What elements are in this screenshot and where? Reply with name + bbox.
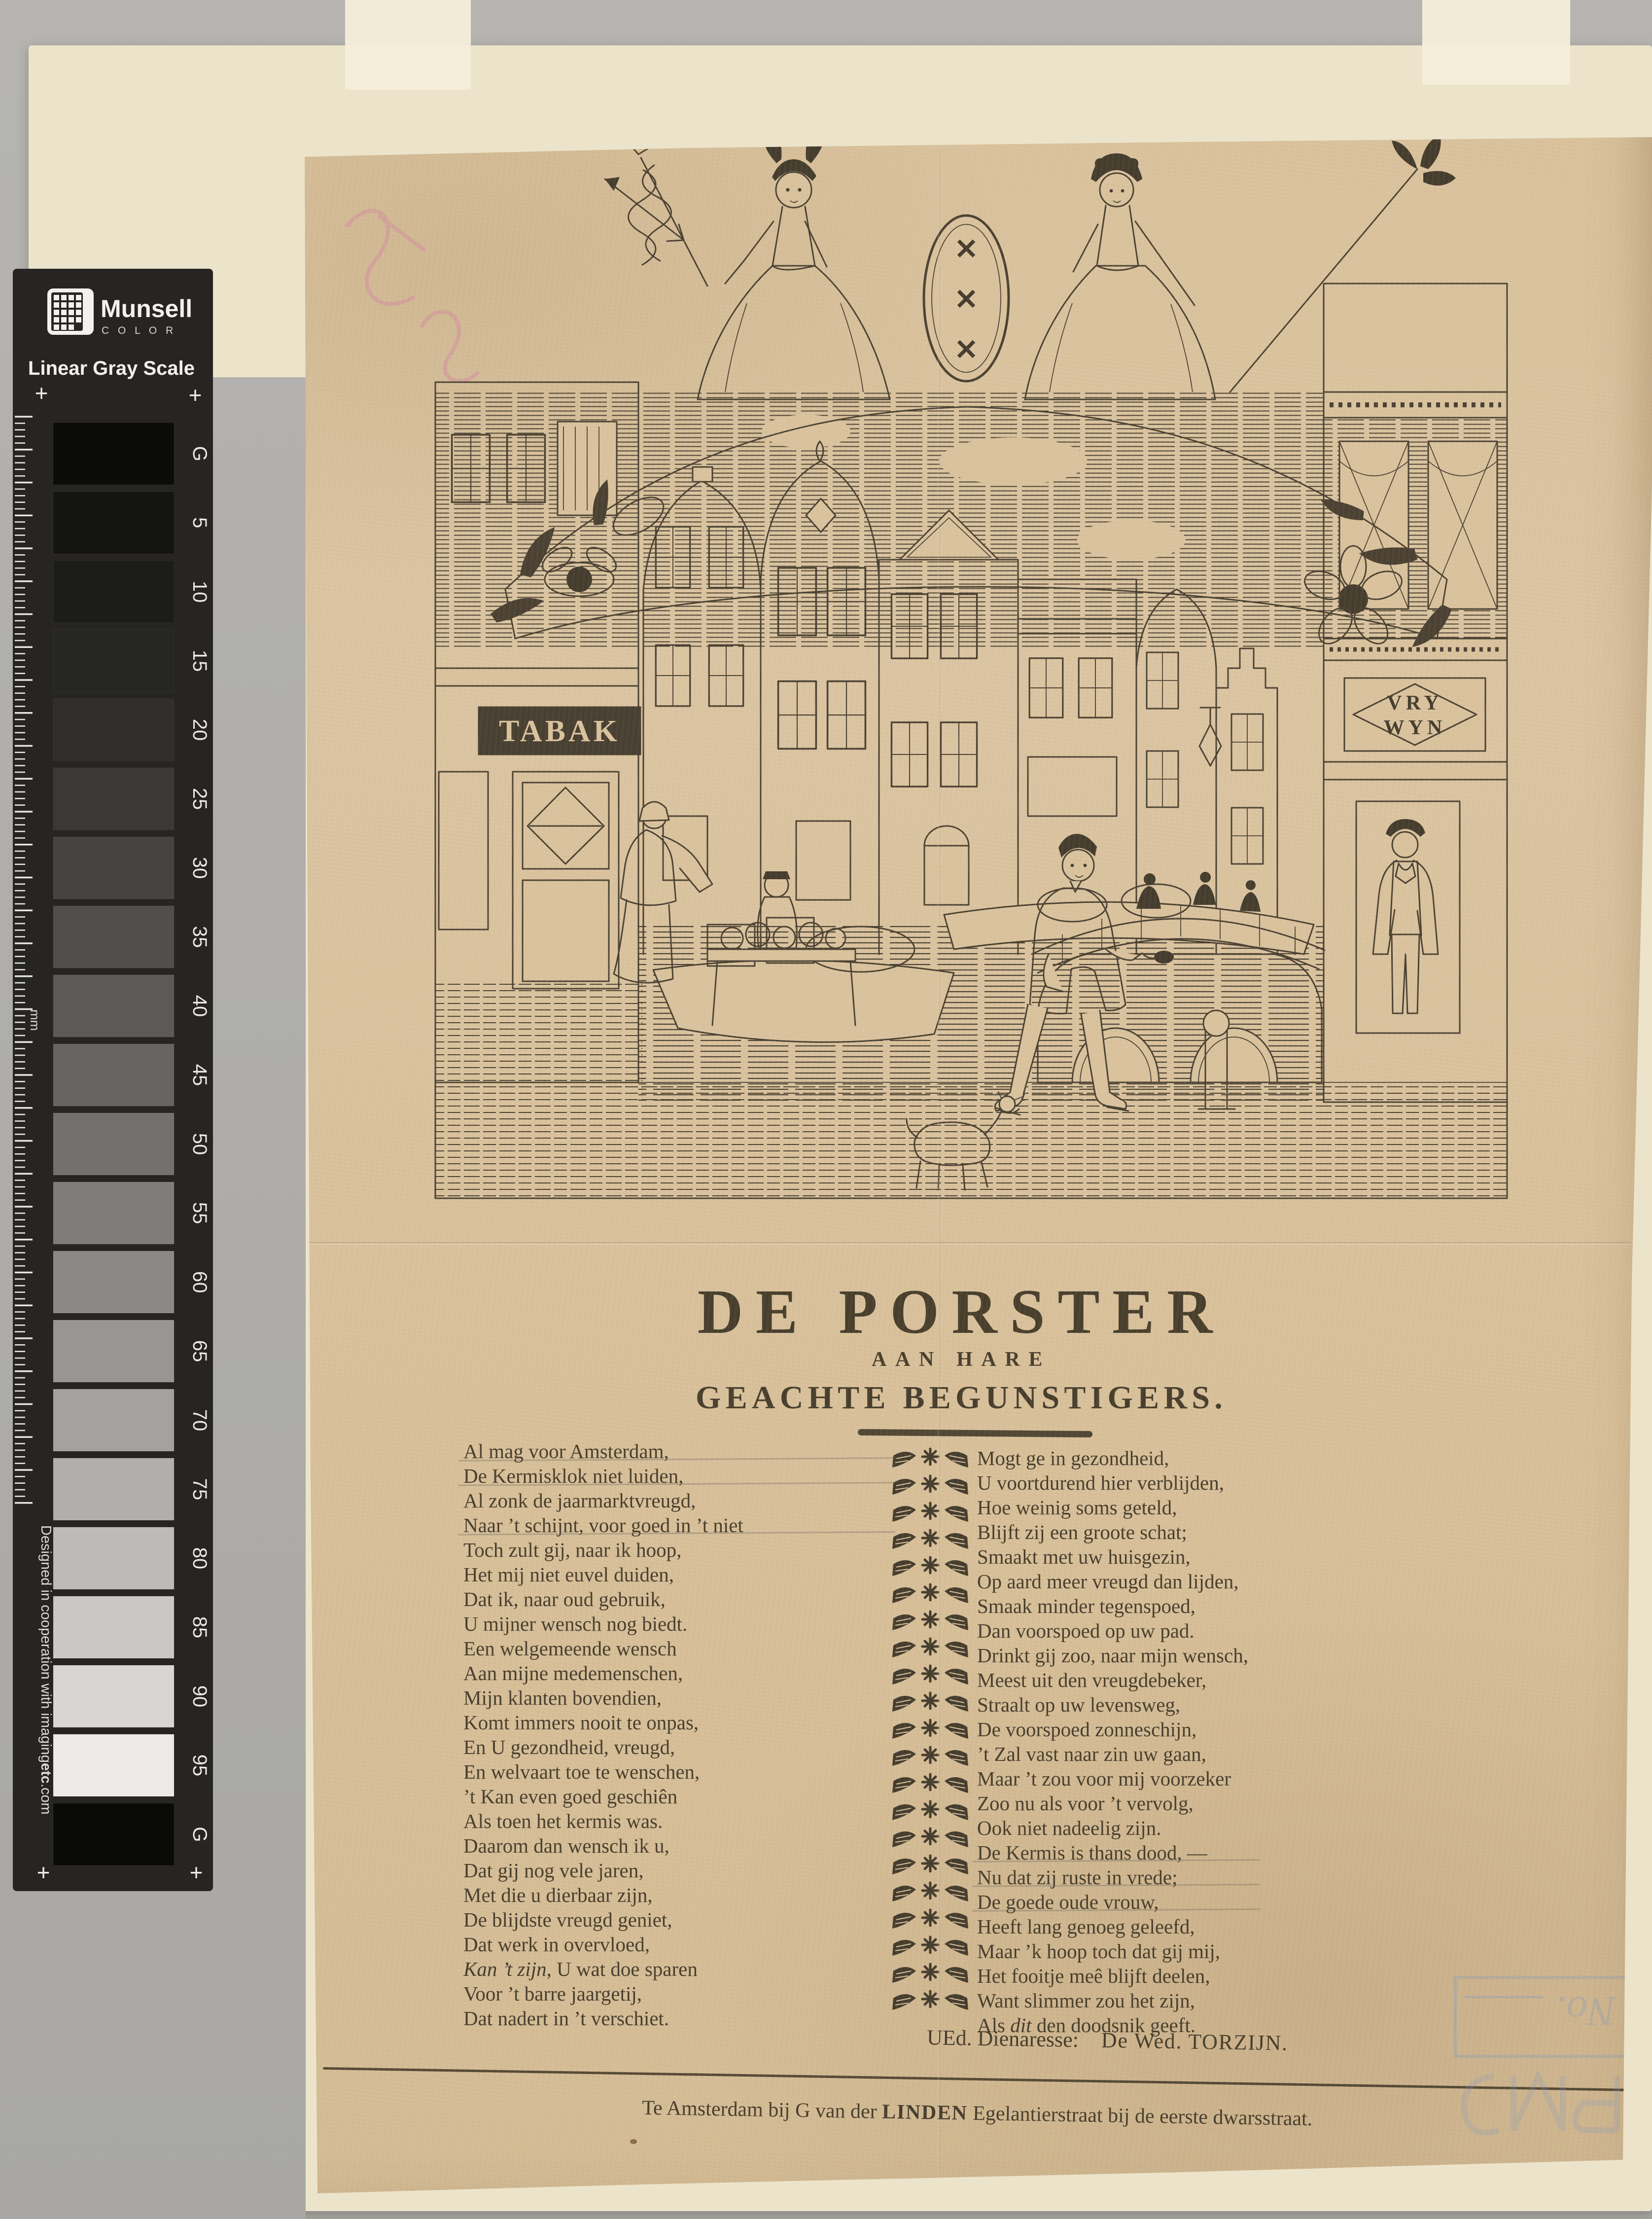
patch-label: 85 <box>189 1616 211 1639</box>
gray-patch <box>53 1734 174 1796</box>
poem-line: Nu dat zij ruste in vrede; <box>977 1865 1248 1890</box>
paper-speck <box>630 2139 637 2144</box>
patch-label: 80 <box>189 1547 211 1570</box>
poem-line: Al zonk de jaarmarktvreugd, <box>463 1488 883 1513</box>
signature-salutation: UEd. Dienaresse: <box>927 2025 1079 2052</box>
ink-stamp-bleedthrough: No. <box>1420 1953 1647 2160</box>
page-title: DE PORSTER <box>404 1280 1518 1343</box>
tabak-sign: TABAK <box>499 715 620 748</box>
allegory-figure-right <box>1025 153 1215 399</box>
patch-label: 95 <box>189 1754 211 1777</box>
svg-text:WYN: WYN <box>1384 716 1446 739</box>
gray-scale-title: Linear Gray Scale <box>28 358 195 379</box>
canal-and-boats <box>638 884 1324 1102</box>
gray-patch <box>53 1182 174 1244</box>
patch-label: 35 <box>189 926 211 948</box>
patch-label: 30 <box>189 857 211 879</box>
ornament-row <box>892 1449 968 1467</box>
svg-text:✕: ✕ <box>954 334 979 366</box>
gray-patch <box>53 423 174 485</box>
gray-patch <box>53 1527 174 1589</box>
poem-line: Drinkt gij zoo, naar mijn wensch, <box>977 1643 1248 1668</box>
ornament-row <box>892 1828 968 1847</box>
patch-label: 70 <box>189 1409 211 1432</box>
patch-label: 60 <box>189 1271 211 1293</box>
poem-line: Smaakt met uw huisgezin, <box>977 1544 1248 1569</box>
gray-patch <box>53 699 174 761</box>
gray-patch <box>53 561 174 623</box>
ornament-row <box>892 1557 968 1576</box>
poem-line: Al mag voor Amsterdam, <box>463 1439 883 1464</box>
poem-line: Een welgemeende wensch <box>463 1636 883 1661</box>
poem-columns: Al mag voor Amsterdam,De Kermisklok niet… <box>463 1439 1632 2038</box>
poem-line: Blijft zij een groote schat; <box>977 1520 1248 1544</box>
street-foreground <box>435 802 1507 1197</box>
patch-label: 5 <box>189 517 211 528</box>
poem-line: Meest uit den vreugdebeker, <box>977 1668 1248 1692</box>
patch-label: 45 <box>189 1064 211 1086</box>
canal-bridge <box>1032 872 1325 1082</box>
wine-house-building: VRY WYN <box>1324 284 1507 1102</box>
poem-line: Want slimmer zou het zijn, <box>977 1988 1248 2013</box>
gray-patches <box>53 423 174 1865</box>
patch-label: G <box>189 446 211 461</box>
signature-line: UEd. Dienaresse:De Wed. TORZIJN. <box>927 2025 1289 2056</box>
poem-line: Dat werk in overvloed, <box>463 1932 883 1957</box>
bridge-pedestrians <box>1136 884 1261 912</box>
poem-line: Het mij niet euvel duiden, <box>463 1562 883 1587</box>
ornament-row <box>892 1801 968 1820</box>
patch-label: 65 <box>189 1340 211 1362</box>
ornament-row <box>892 1476 968 1495</box>
dog <box>907 1091 1024 1190</box>
poem-line: Straalt op uw levensweg, <box>977 1692 1248 1717</box>
poem-line: Dat ik, naar oud gebruik, <box>463 1587 883 1611</box>
vertical-fold-crease <box>938 145 940 2187</box>
poem-line: De Kermisklok niet luiden, <box>463 1464 883 1488</box>
patch-label: 20 <box>189 719 211 741</box>
poem-line: Daarom dan wensch ik u, <box>463 1833 883 1858</box>
corn-cob <box>607 490 670 543</box>
ornament-row <box>892 1883 968 1901</box>
poem-column-left: Al mag voor Amsterdam,De Kermisklok niet… <box>463 1439 883 2038</box>
scanned-document-page: TABAK <box>0 0 1652 2219</box>
ornament-row <box>892 1666 968 1684</box>
poem-line: De blijdste vreugd geniet, <box>463 1907 883 1932</box>
ornament-row <box>892 1693 968 1712</box>
gray-patch <box>53 1251 174 1313</box>
poem-line: U mijner wensch nog biedt. <box>463 1611 883 1636</box>
poem-line: De Kermis is thans dood, — <box>977 1840 1248 1865</box>
registration-plus-bottom-left: + <box>37 1860 50 1885</box>
registration-plus-bottom-right: + <box>190 1860 203 1885</box>
ornament-row <box>892 1937 968 1956</box>
mounting-tape-left <box>345 0 471 90</box>
svg-text:No.: No. <box>1556 1988 1617 2035</box>
gray-patch <box>53 906 174 968</box>
ornament-row <box>892 1530 968 1549</box>
canal-houses <box>643 441 1277 954</box>
caduceus <box>605 140 707 286</box>
ornament-row <box>892 1964 968 1983</box>
pencil-pink-inscription <box>315 162 524 425</box>
woodcut-illustration: TABAK <box>431 116 1511 1208</box>
ornament-row <box>892 1584 968 1603</box>
imprint-publisher: LINDEN <box>882 2101 968 2125</box>
gray-patch <box>53 492 174 554</box>
poem-line: Op aard meer vreugd dan lijden, <box>977 1569 1248 1594</box>
poem-line: ’t Kan even goed geschiên <box>463 1784 883 1809</box>
crest-allegory: ✕ ✕ ✕ <box>489 128 1459 650</box>
poem-line: Maar ’t zou voor mij voorzeker <box>977 1766 1248 1791</box>
poem-line: Als toen het kermis was. <box>463 1809 883 1833</box>
ornament-divider <box>883 1439 977 2038</box>
man-in-doorway <box>1373 819 1438 1013</box>
patch-label: 15 <box>189 650 211 672</box>
patch-label: 10 <box>189 581 211 603</box>
ornament-row <box>892 1747 968 1766</box>
ornament-row <box>892 1720 968 1739</box>
poem-line: U voortdurend hier verblijden, <box>977 1470 1248 1495</box>
amsterdam-shield: ✕ ✕ ✕ <box>924 215 1009 381</box>
mounting-tape-right <box>1422 0 1570 85</box>
imprint-line: Te Amsterdam bij G van der LINDEN Egelan… <box>323 2091 1632 2136</box>
poem-line: Hoe weinig soms geteld, <box>977 1495 1248 1520</box>
flower-garland <box>505 407 1447 639</box>
ornament-row <box>892 1503 968 1522</box>
poem-line: De voorspoed zonneschijn, <box>977 1717 1248 1742</box>
gray-patch <box>53 837 174 899</box>
poem-line: Zoo nu als voor ’t vervolg, <box>977 1791 1248 1816</box>
poem-line: Als dit den doodsnik geeft. <box>977 2013 1248 2038</box>
poem-line: Kan ’t zijn, U wat doe sparen <box>463 1957 883 1981</box>
heading-rule <box>858 1429 1092 1437</box>
poem-line: Maar ’k hoop toch dat gij mij, <box>977 1939 1248 1964</box>
poem-line: Dat gij nog vele jaren, <box>463 1858 883 1883</box>
munsell-brand-sub: C O L O R <box>102 325 176 336</box>
gray-patch <box>53 975 174 1037</box>
poem-line: Aan mijne medemenschen, <box>463 1661 883 1685</box>
ornament-row <box>892 1611 968 1630</box>
signature-name: De Wed. TORZIJN. <box>1101 2028 1289 2055</box>
poem-line: En U gezondheid, vreugd, <box>463 1735 883 1759</box>
flower-right <box>1301 546 1406 650</box>
page-subtitle-2: GEACHTE BEGUNSTIGERS. <box>404 1382 1518 1414</box>
poem-line: Voor ’t barre jaargetij, <box>463 1981 883 2006</box>
poem-line: Ook niet nadeelig zijn. <box>977 1816 1248 1840</box>
ruler-unit-label: mm <box>28 1009 42 1031</box>
ornament-row <box>892 1910 968 1929</box>
munsell-gray-scale-strip: Munsell C O L O R Linear Gray Scale + + … <box>13 269 213 1891</box>
patch-label: 50 <box>189 1133 211 1155</box>
gray-patch <box>53 1320 174 1382</box>
gray-patch <box>53 1113 174 1175</box>
poem-line: Komt immers nooit te onpas, <box>463 1710 883 1735</box>
ornament-row <box>892 1639 968 1657</box>
tobacco-shop-building: TABAK <box>435 382 641 1082</box>
imprint-post: Egelantierstraat bij de eerste dwarsstra… <box>967 2102 1312 2131</box>
page-subtitle-1: AAN HARE <box>404 1349 1518 1370</box>
svg-text:✕: ✕ <box>954 284 979 316</box>
poem-line: En welvaart toe te wenschen, <box>463 1759 883 1784</box>
patch-label: 25 <box>189 788 211 810</box>
allegory-figure-left <box>698 128 890 399</box>
poem-line: Het fooitje meê blijft deelen, <box>977 1964 1248 1988</box>
gray-patch <box>53 1803 174 1865</box>
poem-line: Smaak minder tegenspoed, <box>977 1594 1248 1618</box>
patch-label: 55 <box>189 1202 211 1224</box>
gray-patch <box>53 1665 174 1727</box>
patch-label: 75 <box>189 1478 211 1501</box>
gray-patch <box>53 1596 174 1658</box>
poem-line: De goede oude vrouw, <box>977 1890 1248 1914</box>
poem-line: Heeft lang genoeg geleefd, <box>977 1914 1248 1939</box>
flower-left <box>538 543 620 596</box>
patch-label: G <box>189 1826 211 1842</box>
poem-line: Dan voorspoed op uw pad. <box>977 1618 1248 1643</box>
credit-text: Designed in cooperation with imagingetc.… <box>38 1525 54 1815</box>
registration-plus-top-right: + <box>189 382 202 408</box>
ornament-row <box>892 1856 968 1874</box>
ornament-row <box>892 1774 968 1793</box>
registration-plus-top-left: + <box>35 380 48 406</box>
trident <box>1230 135 1456 392</box>
horizontal-fold-crease <box>310 1242 1631 1244</box>
gray-patch <box>53 768 174 830</box>
imprint-rule <box>323 2067 1632 2091</box>
street-scene: TABAK <box>435 128 1507 1198</box>
patch-label: 40 <box>189 995 211 1017</box>
poem-line: Toch zult gij, naar ik hoop, <box>463 1538 883 1562</box>
poem-column-right: Mogt ge in gezondheid,U voortdurend hier… <box>977 1439 1248 2038</box>
poem-line: Naar ’t schijnt, voor goed in ’t niet <box>463 1513 883 1538</box>
munsell-brand: Munsell <box>101 295 192 322</box>
produce-stall <box>707 871 855 1025</box>
street-bollard <box>1198 1010 1235 1109</box>
market-woman <box>614 802 712 983</box>
imprint-pre: Te Amsterdam bij G van der <box>642 2097 882 2123</box>
munsell-logo: Munsell C O L O R <box>47 288 192 336</box>
ornament-row <box>892 1991 968 2010</box>
gray-patch <box>53 630 174 692</box>
gray-patch <box>53 1458 174 1520</box>
gray-patch <box>53 1389 174 1451</box>
poem-line: Mijn klanten bovendien, <box>463 1685 883 1710</box>
patch-label: 90 <box>189 1685 211 1708</box>
gray-patch <box>53 1044 174 1106</box>
svg-text:✕: ✕ <box>954 233 979 265</box>
patch-labels: G5101520253035404550556065707580859095G <box>189 446 211 1842</box>
vry-wyn-sign: VRY <box>1387 692 1443 715</box>
poem-line: Dat nadert in ’t verschiet. <box>463 2006 883 2031</box>
walking-porter <box>995 834 1174 1115</box>
poem-line: Met die u dierbaar zijn, <box>463 1883 883 1907</box>
poem-line: ’t Zal vast naar zin uw gaan, <box>977 1742 1248 1766</box>
poem-line: Mogt ge in gezondheid, <box>977 1446 1248 1470</box>
